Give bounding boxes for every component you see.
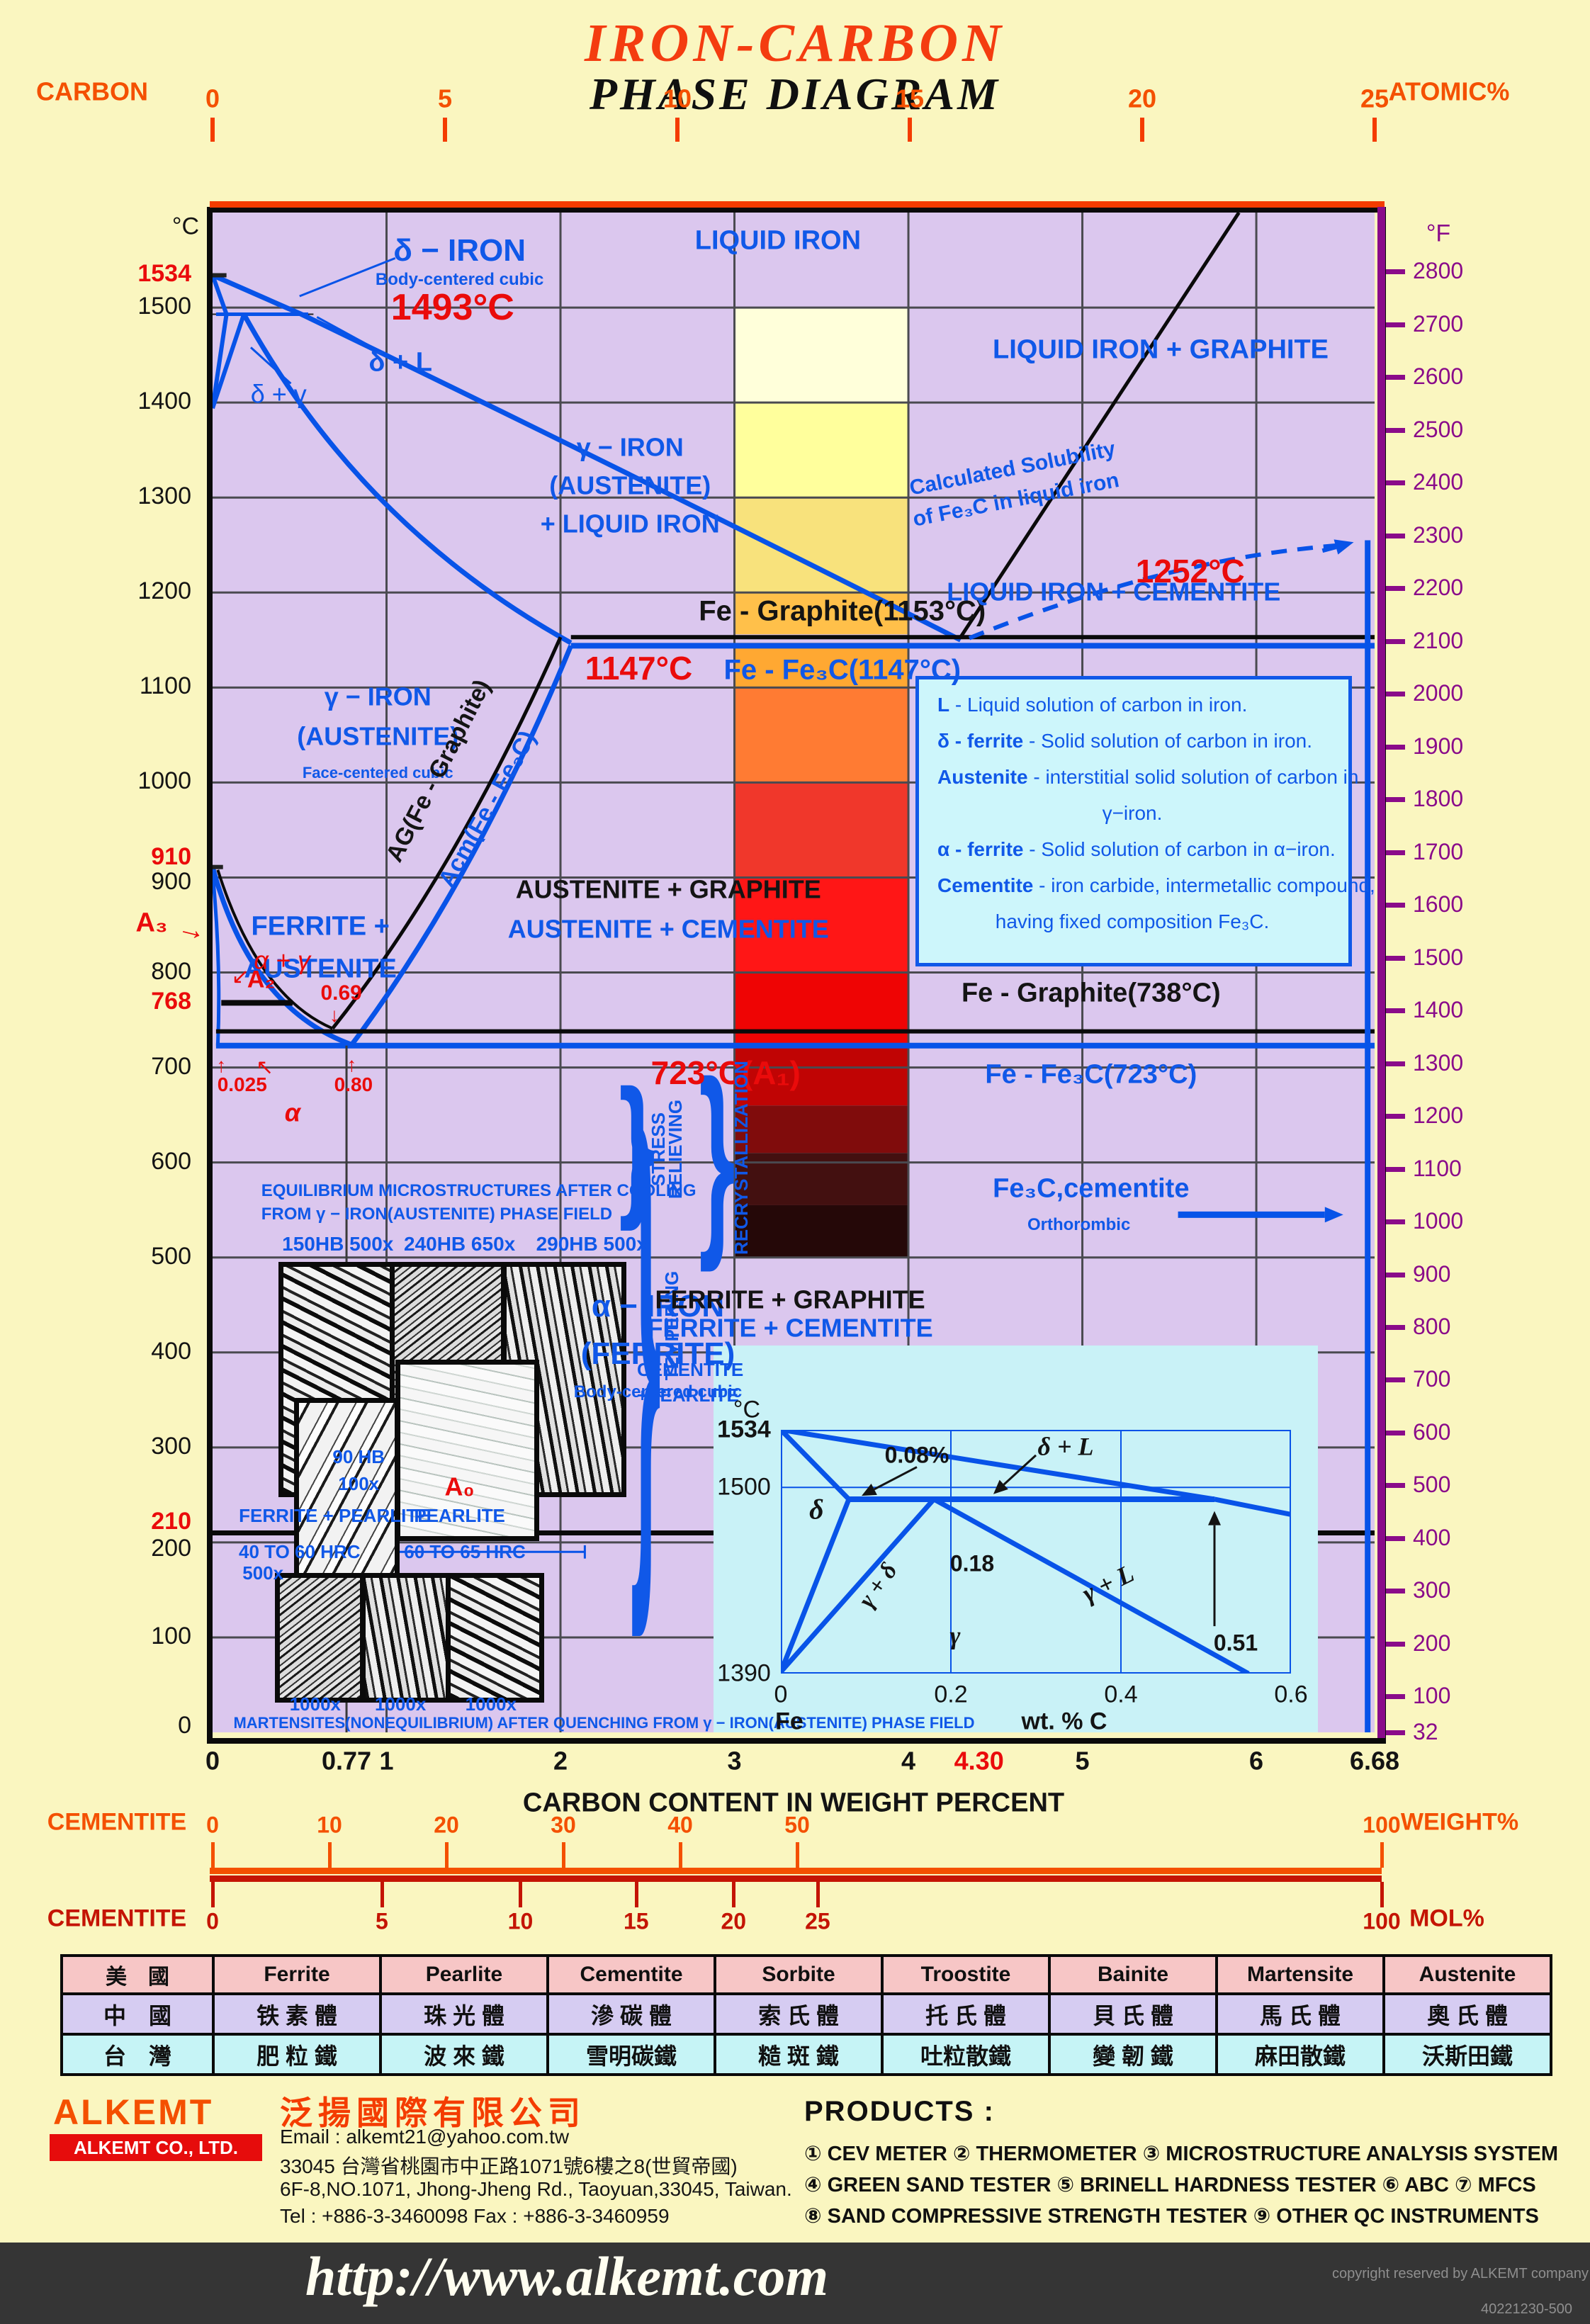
mol-scale-tickmark — [816, 1882, 820, 1907]
company-address-cn: 33045 台灣省桃園市中正路1071號6樓之8(世貿帝國) — [280, 2151, 738, 2179]
phase-label: Fe - Fe₃C(723°C) — [985, 1061, 1197, 1090]
phase-label: 40 TO 60 HRC — [239, 1542, 360, 1562]
table-cell: 糙 斑 鐵 — [715, 2034, 882, 2075]
wt-axis-tick-6.68: 6.68 — [1350, 1748, 1399, 1776]
inset-x-axis-title: wt. % C — [1022, 1709, 1107, 1735]
mol-scale-tick-100: 100 — [1363, 1910, 1400, 1934]
c-axis-tick-1000: 1000 — [106, 767, 191, 795]
atomic-tickmark — [443, 118, 447, 142]
atomic-tickmark — [210, 118, 215, 142]
c-axis-tick-210: 210 — [106, 1508, 191, 1535]
carbon-axis-caption: CARBON — [36, 79, 148, 106]
mol-scale-tickmark — [519, 1882, 522, 1907]
mol-scale-tick-5: 5 — [376, 1910, 388, 1934]
products-title: PRODUCTS : — [804, 2096, 995, 2128]
inset-label: 0.18 — [950, 1551, 994, 1576]
f-axis-tick-2000: 2000 — [1413, 680, 1463, 706]
phase-label: PEARLITE — [414, 1506, 505, 1525]
f-axis-tick-32: 32 — [1413, 1719, 1438, 1745]
f-axis-tickmark — [1385, 797, 1405, 802]
f-axis-tick-2300: 2300 — [1413, 522, 1463, 548]
f-axis-tickmark — [1385, 1536, 1405, 1541]
phase-label: 100x — [338, 1474, 379, 1494]
f-axis-tick-700: 700 — [1413, 1366, 1450, 1392]
atomic-tickmark — [1372, 118, 1377, 142]
atomic-tick-5: 5 — [438, 86, 452, 113]
atomic-axis-line — [210, 201, 1385, 208]
f-axis-tickmark — [1385, 1061, 1405, 1066]
fahrenheit-caption: °F — [1426, 221, 1450, 247]
table-cell: 貝 氏 體 — [1049, 1994, 1217, 2034]
mol-scale-caption: CEMENTITE — [47, 1906, 186, 1932]
f-axis-tickmark — [1385, 375, 1405, 380]
table-cell: 美 國 — [62, 1956, 213, 1994]
phase-label: RECRYSTALLIZATION — [731, 1061, 751, 1255]
inset-y-tick-1500: 1500 — [717, 1474, 771, 1501]
phase-label: 0.80 — [334, 1074, 373, 1095]
label-fe3c-cementite: Fe₃C,cementite — [993, 1175, 1189, 1204]
table-cell: Ferrite — [213, 1956, 380, 1994]
heat-band — [735, 1105, 909, 1153]
phase-label: FROM γ − IRON(AUSTENITE) PHASE FIELD — [261, 1205, 612, 1224]
wt-axis-tick-4.30: 4.30 — [954, 1748, 1004, 1776]
atomic-tick-10: 10 — [663, 86, 692, 113]
phase-label: LIQUID IRON + CEMENTITE — [947, 579, 1280, 607]
table-cell: Cementite — [548, 1956, 715, 1994]
phase-label: EQUILIBRIUM MICROSTRUCTURES AFTER COOLIN… — [261, 1182, 697, 1200]
inset-label: γ — [950, 1623, 961, 1650]
f-axis-tickmark — [1385, 269, 1405, 274]
wt-axis-tick-2: 2 — [553, 1748, 568, 1776]
phase-label: 1000x — [290, 1694, 341, 1714]
company-logo-sub: ALKEMT CO., LTD. — [50, 2134, 262, 2161]
label-a3: A₃ — [136, 908, 168, 937]
label-a2: A₂ — [247, 967, 276, 993]
c-axis-tick-0: 0 — [106, 1712, 191, 1739]
c-axis-tick-910: 910 — [106, 843, 191, 871]
inset-x-tick-0.6: 0.6 — [1274, 1682, 1307, 1708]
c-axis-tick-900: 900 — [106, 868, 191, 896]
inset-label: δ + L — [1038, 1433, 1094, 1460]
inset-label: 0.08% — [885, 1443, 949, 1468]
phase-label: FERRITE + — [252, 913, 390, 942]
table-cell: 吐粒散鐵 — [882, 2034, 1049, 2075]
weight-scale-tickmark — [211, 1842, 215, 1868]
c-axis-tick-1100: 1100 — [106, 672, 191, 700]
mol-scale-tick-15: 15 — [624, 1910, 649, 1934]
table-cell: Pearlite — [380, 1956, 548, 1994]
legend-line: α - ferrite - Solid solution of carbon i… — [937, 831, 1348, 867]
table-cell: 沃斯田鐵 — [1384, 2034, 1551, 2075]
wt-axis-tick-6: 6 — [1249, 1748, 1263, 1776]
celsius-caption: °C — [172, 214, 199, 240]
f-axis-tickmark — [1385, 692, 1405, 696]
f-axis-tickmark — [1385, 1008, 1405, 1013]
phase-label: γ − IRON — [325, 683, 432, 711]
mol-scale-tickmark — [1380, 1882, 1384, 1907]
phase-label: 290HB 500x — [536, 1234, 648, 1255]
phase-label: 60 TO 65 HRC — [404, 1542, 525, 1562]
x-axis-title: CARBON CONTENT IN WEIGHT PERCENT — [523, 1788, 1064, 1817]
f-axis-tick-1400: 1400 — [1413, 997, 1463, 1023]
inset-y-tick-1390: 1390 — [717, 1661, 771, 1687]
products-line-1: ① CEV METER ② THERMOMETER ③ MICROSTRUCTU… — [804, 2141, 1558, 2166]
terminology-table: 美 國FerritePearliteCementiteSorbiteTroost… — [60, 1954, 1552, 2076]
phase-label: 500x — [242, 1563, 283, 1583]
f-axis-tick-1800: 1800 — [1413, 786, 1463, 812]
f-axis-tickmark — [1385, 745, 1405, 750]
label-1493c: 1493°C — [391, 288, 514, 327]
atomic-tick-0: 0 — [205, 86, 220, 113]
label-ferrite-cementite: FERRITE + CEMENTITE — [648, 1315, 933, 1343]
f-axis-tickmark — [1385, 639, 1405, 644]
inset-x-tick-0.4: 0.4 — [1104, 1682, 1137, 1708]
legend-line: Austenite - interstitial solid solution … — [937, 759, 1348, 795]
phase-label: α — [285, 1099, 300, 1127]
f-axis-tickmark — [1385, 903, 1405, 908]
phase-label: (AUSTENITE) — [297, 723, 458, 751]
company-logo: ALKEMT — [53, 2092, 213, 2133]
c-axis-tick-700: 700 — [106, 1053, 191, 1081]
micrograph-image — [275, 1573, 365, 1703]
weight-scale-tickmark — [445, 1842, 449, 1868]
micrograph-image — [361, 1573, 451, 1703]
phase-label: 150HB 500x — [282, 1234, 393, 1255]
c-axis-tick-1400: 1400 — [106, 388, 191, 415]
weight-scale-tickmark — [328, 1842, 332, 1868]
f-axis-tick-1300: 1300 — [1413, 1050, 1463, 1076]
f-axis-tick-200: 200 — [1413, 1630, 1450, 1657]
mol-scale-tickmark — [732, 1882, 735, 1907]
weight-scale-tick-0: 0 — [206, 1813, 219, 1838]
c-axis-tick-200: 200 — [106, 1535, 191, 1562]
c-axis-tick-1300: 1300 — [106, 483, 191, 510]
label-1147c: 1147°C — [585, 651, 692, 687]
inset-arrow-head — [1208, 1511, 1221, 1525]
c-axis-tick-768: 768 — [106, 988, 191, 1015]
wt-axis-tick-4: 4 — [901, 1748, 915, 1776]
products-line-3: ⑧ SAND COMPRESSIVE STRENGTH TESTER ⑨ OTH… — [804, 2204, 1539, 2228]
c-axis-tick-300: 300 — [106, 1433, 191, 1460]
table-cell: 铁 素 體 — [213, 1994, 380, 2034]
f-axis-tick-100: 100 — [1413, 1683, 1450, 1709]
f-axis-tick-1600: 1600 — [1413, 891, 1463, 918]
phase-label: 1000x — [375, 1694, 426, 1714]
f-axis-tick-400: 400 — [1413, 1525, 1450, 1551]
f-axis-tick-2700: 2700 — [1413, 311, 1463, 337]
f-axis-tickmark — [1385, 322, 1405, 327]
mol-scale-tick-20: 20 — [721, 1910, 746, 1934]
phase-label: → — [174, 911, 209, 948]
table-cell: 肥 粒 鐵 — [213, 2034, 380, 2075]
wt-axis-tick-0.77: 0.77 — [322, 1748, 371, 1776]
label-liquid-iron: LIQUID IRON — [695, 227, 861, 256]
label-fe-graphite-738: Fe - Graphite(738°C) — [962, 978, 1221, 1008]
inset-line — [781, 1499, 934, 1672]
inset-fe-label: Fe — [775, 1709, 804, 1735]
f-axis-tickmark — [1385, 534, 1405, 538]
phase-label: FERRITE + PEARLITE — [239, 1506, 429, 1525]
label-delta-iron: δ − IRON — [393, 234, 526, 268]
f-axis-tick-600: 600 — [1413, 1419, 1450, 1445]
mol-scale-tickmark — [635, 1882, 638, 1907]
company-email[interactable]: Email : alkemt21@yahoo.com.tw — [280, 2126, 569, 2148]
f-axis-tick-1100: 1100 — [1413, 1156, 1462, 1182]
phase-label: (AUSTENITE) — [549, 473, 711, 500]
f-axis-tickmark — [1385, 1694, 1405, 1699]
weight-scale-tick-10: 10 — [317, 1813, 342, 1838]
f-axis-tick-1900: 1900 — [1413, 733, 1463, 760]
label-723c: 723°C(A₁) — [651, 1056, 801, 1091]
inset-x-tick-0.2: 0.2 — [934, 1682, 967, 1708]
mol-scale-tick-25: 25 — [805, 1910, 830, 1934]
f-axis-tickmark — [1385, 428, 1405, 433]
phase-label: Fe - Fe₃C(1147°C) — [723, 655, 961, 686]
f-axis-tickmark — [1385, 586, 1405, 591]
table-cell: 雪明碳鐵 — [548, 2034, 715, 2075]
mol-scale-tick-10: 10 — [508, 1910, 534, 1934]
heat-band — [735, 687, 909, 782]
atomic-tickmark — [908, 118, 912, 142]
legend-line: Cementite - iron carbide, intermetallic … — [937, 867, 1348, 903]
weight-scale-tick-20: 20 — [434, 1813, 459, 1838]
mol-scale-tickmark — [380, 1882, 384, 1907]
micrograph-image — [294, 1398, 400, 1601]
f-axis-tick-800: 800 — [1413, 1314, 1450, 1340]
table-cell: Austenite — [1384, 1956, 1551, 1994]
f-axis-tick-2800: 2800 — [1413, 258, 1463, 284]
micrograph-image — [446, 1573, 544, 1703]
table-cell: 變 韌 鐵 — [1049, 2034, 1217, 2075]
weight-scale-caption: CEMENTITE — [47, 1810, 186, 1836]
table-cell: 索 氏 體 — [715, 1994, 882, 2034]
f-axis-tickmark — [1385, 956, 1405, 961]
phase-label: δ + γ — [251, 381, 307, 409]
arrow-head — [1334, 539, 1354, 554]
phase-label: AUSTENITE + GRAPHITE — [516, 876, 821, 903]
table-cell: Bainite — [1049, 1956, 1217, 1994]
atomic-tick-20: 20 — [1128, 86, 1156, 113]
inset-y-tick-1534: 1534 — [717, 1417, 771, 1443]
mol-scale-unit: MOL% — [1409, 1906, 1484, 1932]
heat-band — [735, 1153, 909, 1205]
legend-line: δ - ferrite - Solid solution of carbon i… — [937, 723, 1348, 759]
c-axis-tick-1200: 1200 — [106, 577, 191, 605]
f-axis-tick-900: 900 — [1413, 1261, 1450, 1287]
legend-line: having fixed composition Fe₃C. — [937, 903, 1348, 940]
print-code: 40221230-500 — [1481, 2301, 1572, 2318]
heat-band — [735, 1205, 909, 1258]
label-ferrite-graphite: FERRITE + GRAPHITE — [655, 1287, 925, 1314]
f-axis-tickmark — [1385, 1730, 1405, 1735]
phase-label: ↑ — [216, 1055, 226, 1076]
f-axis-tickmark — [1385, 850, 1405, 855]
phase-label: 0.69 — [320, 982, 361, 1005]
atomic-tick-25: 25 — [1360, 86, 1389, 113]
phase-label: Orthorombic — [1027, 1216, 1130, 1234]
inset-label: δ — [809, 1494, 824, 1525]
wt-axis-tick-0: 0 — [205, 1748, 220, 1776]
f-axis-tick-300: 300 — [1413, 1577, 1450, 1603]
f-axis-tickmark — [1385, 1483, 1405, 1488]
atomic-tickmark — [1140, 118, 1144, 142]
f-axis-tickmark — [1385, 1273, 1405, 1277]
weight-scale-unit: WEIGHT% — [1401, 1810, 1518, 1836]
table-cell: Martensite — [1217, 1956, 1384, 1994]
website-url[interactable]: http://www.alkemt.com — [0, 2245, 1134, 2308]
f-axis-tick-500: 500 — [1413, 1472, 1450, 1498]
mol-scale-tickmark — [211, 1882, 215, 1907]
label-fe-graphite-1153: Fe - Graphite(1153°C) — [699, 596, 986, 626]
legend-line: L - Liquid solution of carbon in iron. — [937, 687, 1348, 723]
f-axis-tick-2200: 2200 — [1413, 575, 1463, 601]
c-axis-tick-500: 500 — [106, 1243, 191, 1270]
company-address-en: 6F-8,NO.1071, Jhong-Jheng Rd., Taoyuan,3… — [280, 2178, 792, 2201]
phase-boundary — [213, 314, 227, 408]
atomic-tick-15: 15 — [896, 86, 924, 113]
weight-scale-tick-100: 100 — [1363, 1813, 1400, 1838]
heat-band — [735, 782, 909, 877]
f-axis-tick-1700: 1700 — [1413, 839, 1463, 865]
c-axis-tick-1534: 1534 — [106, 260, 191, 288]
c-axis-tick-400: 400 — [106, 1338, 191, 1365]
f-axis-tick-2100: 2100 — [1413, 628, 1463, 654]
inset-arrow — [874, 1467, 917, 1489]
weight-scale-tickmark — [562, 1842, 565, 1868]
phase-label: δ + L — [368, 348, 432, 377]
phase-boundary — [213, 873, 219, 1046]
f-axis-tick-2500: 2500 — [1413, 417, 1463, 443]
heat-band — [735, 402, 909, 497]
page-title: IRON-CARBON — [0, 13, 1590, 74]
heat-band — [735, 308, 909, 402]
f-axis-tick-1500: 1500 — [1413, 944, 1463, 971]
wt-axis-tick-1: 1 — [379, 1748, 393, 1776]
phase-label: AUSTENITE + CEMENTITE — [508, 916, 829, 944]
phase-boundary — [317, 317, 378, 350]
wt-axis-tick-3: 3 — [728, 1748, 742, 1776]
poster: IRON-CARBON PHASE DIAGRAM L - Liquid sol… — [0, 0, 1590, 2324]
f-axis-tick-2600: 2600 — [1413, 363, 1463, 390]
table-cell: Sorbite — [715, 1956, 882, 1994]
copyright-text: copyright reserved by ALKEMT company — [1332, 2266, 1589, 2282]
phase-legend: L - Liquid solution of carbon in iron.δ … — [915, 676, 1352, 966]
f-axis-tickmark — [1385, 1167, 1405, 1172]
f-axis-tickmark — [1385, 1325, 1405, 1330]
weight-scale-tickmark — [1380, 1842, 1384, 1868]
phase-label: 90 HB — [332, 1447, 385, 1467]
inset-line — [1214, 1499, 1291, 1515]
phase-boundary — [213, 314, 244, 408]
table-cell: 珠 光 體 — [380, 1994, 548, 2034]
table-cell: 台 灣 — [62, 2034, 213, 2075]
phase-label: γ − IRON — [577, 434, 684, 462]
c-axis-tick-600: 600 — [106, 1148, 191, 1175]
phase-label: Body-centered cubic — [574, 1383, 742, 1401]
c-axis-tick-1500: 1500 — [106, 293, 191, 320]
atomic-percent-caption: ATOMIC% — [1389, 79, 1510, 106]
f-axis-tickmark — [1385, 1589, 1405, 1593]
phase-label: MARTENSITES(NONEQUILIBRIUM) AFTER QUENCH… — [233, 1715, 974, 1732]
heat-band — [735, 497, 909, 592]
f-axis-tickmark — [1385, 1431, 1405, 1435]
phase-label: + LIQUID IRON — [541, 510, 720, 538]
table-cell: 馬 氏 體 — [1217, 1994, 1384, 2034]
phase-label: ↓ — [329, 1005, 339, 1026]
table-cell: Troostite — [882, 1956, 1049, 1994]
f-axis-tickmark — [1385, 1377, 1405, 1382]
mol-scale-tick-0: 0 — [206, 1910, 219, 1934]
phase-label: ↖ — [256, 1056, 274, 1078]
arrow-head — [1325, 1207, 1343, 1222]
atomic-tickmark — [675, 118, 680, 142]
weight-scale-tickmark — [796, 1842, 799, 1868]
f-axis-tick-1200: 1200 — [1413, 1102, 1463, 1129]
heat-band — [735, 973, 909, 1046]
label-a0: A₀ — [444, 1474, 474, 1501]
f-axis-tickmark — [1385, 480, 1405, 485]
table-cell: 中 國 — [62, 1994, 213, 2034]
weight-scale-line — [210, 1868, 1382, 1874]
table-cell: 波 來 鐵 — [380, 2034, 548, 2075]
f-axis-tick-2400: 2400 — [1413, 469, 1463, 495]
table-cell: 奧 氏 體 — [1384, 1994, 1551, 2034]
fahrenheit-axis-line — [1377, 207, 1385, 1738]
inset-label: 0.51 — [1214, 1631, 1258, 1656]
phase-label: ↑ — [346, 1054, 356, 1075]
c-axis-tick-800: 800 — [106, 958, 191, 986]
company-phone: Tel : +886-3-3460098 Fax : +886-3-346095… — [280, 2205, 670, 2228]
f-axis-tick-1000: 1000 — [1413, 1208, 1463, 1234]
products-line-2: ④ GREEN SAND TESTER ⑤ BRINELL HARDNESS T… — [804, 2172, 1536, 2197]
mol-scale-line — [210, 1875, 1382, 1882]
weight-scale-tickmark — [679, 1842, 682, 1868]
f-axis-tickmark — [1385, 1642, 1405, 1647]
table-cell: 滲 碳 體 — [548, 1994, 715, 2034]
f-axis-tickmark — [1385, 1219, 1405, 1224]
table-cell: 托 氏 體 — [882, 1994, 1049, 2034]
table-cell: 麻田散鐵 — [1217, 2034, 1384, 2075]
page-subtitle: PHASE DIAGRAM — [0, 68, 1590, 120]
f-axis-tickmark — [1385, 1114, 1405, 1119]
c-axis-tick-100: 100 — [106, 1623, 191, 1650]
label-liquid-iron-graphite: LIQUID IRON + GRAPHITE — [993, 336, 1329, 365]
phase-label: 240HB 650x — [404, 1234, 515, 1255]
phase-boundary — [251, 347, 291, 383]
inset-x-tick-0: 0 — [774, 1682, 788, 1708]
wt-axis-tick-5: 5 — [1076, 1748, 1090, 1776]
phase-label: 1000x — [466, 1694, 517, 1714]
legend-line: γ−iron. — [937, 795, 1348, 831]
phase-label: RELIEVING — [665, 1100, 685, 1199]
